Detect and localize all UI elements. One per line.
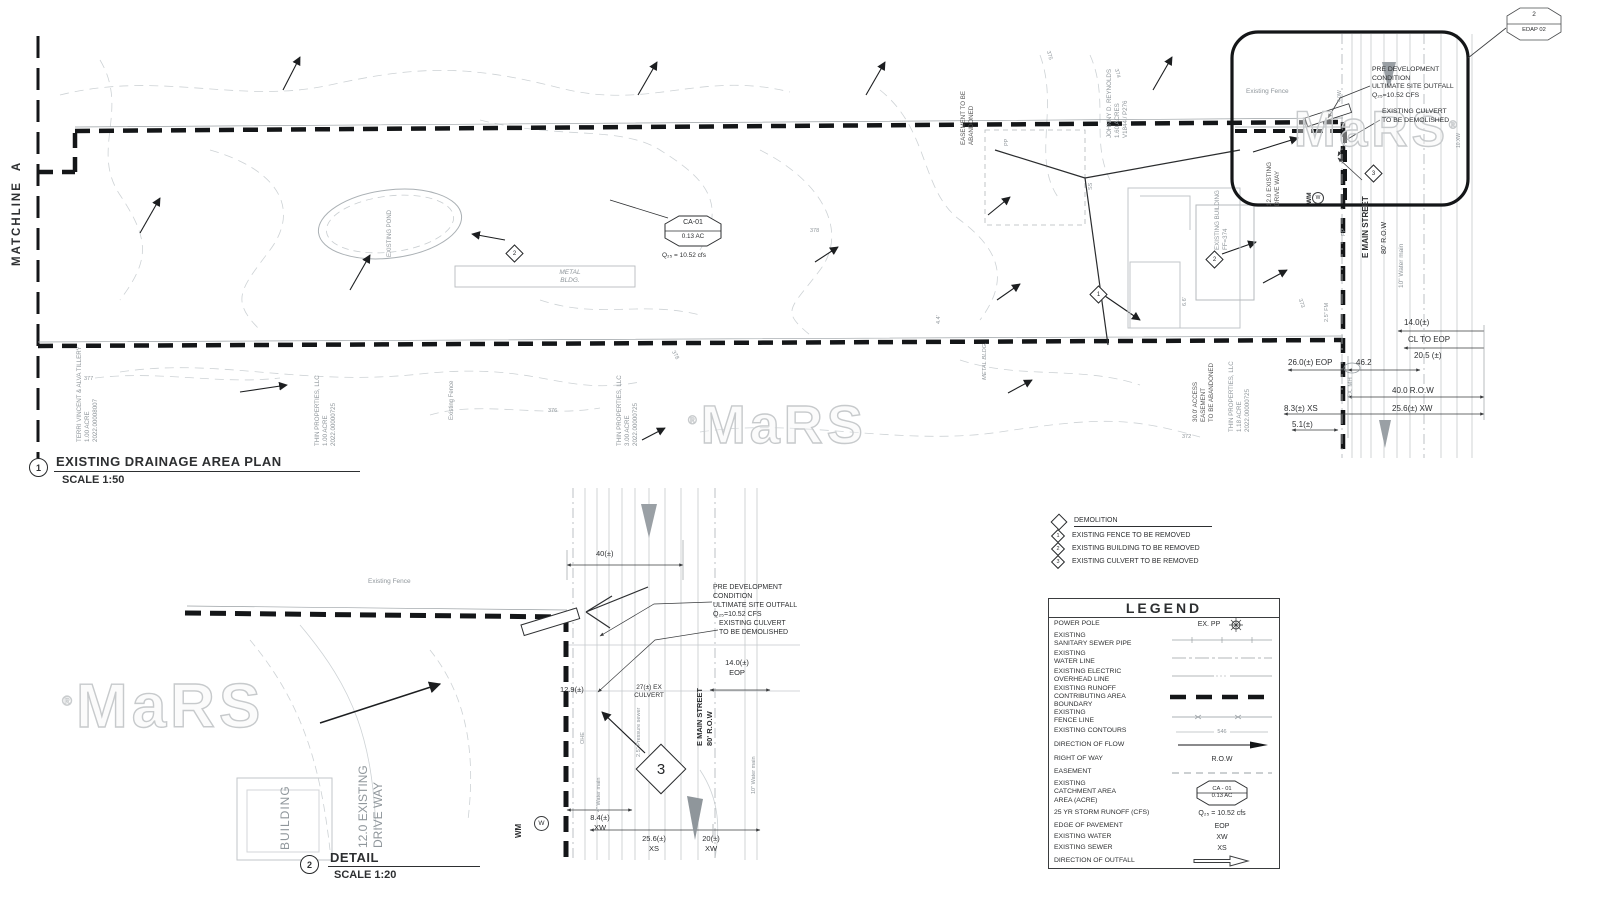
property-tillery: TERRI VINCENT & ALVA TILLERY 1.00 ACRE 2… [76, 346, 100, 442]
overhead-line-icon [1172, 672, 1272, 680]
detail-pressure-sewer: 2.5" Pressure sewer [636, 708, 643, 757]
legend-label: DIRECTION OF FLOW [1054, 741, 1170, 749]
legend: LEGEND POWER POLE EX. PP EXISTING SANITA… [1048, 598, 1280, 869]
catchment-id: CA-01 [665, 219, 721, 228]
property-thin-3: THIN PROPERTIES, LLC 3.00 ACRE 2022.0000… [616, 375, 640, 446]
existing-building-outline [1128, 188, 1254, 328]
detail-dim-40: 40(±) [596, 549, 613, 559]
legend-label: EXISTING ELECTRIC OVERHEAD LINE [1054, 668, 1170, 684]
main-title-number: 1 [29, 458, 48, 477]
catchment-octagon-icon: CA - 01 0.13 AC [1196, 780, 1248, 806]
contour-line-left [1176, 729, 1214, 735]
legend-row-power-pole: POWER POLE EX. PP [1049, 618, 1279, 631]
diamond-1-icon: 1 [1051, 528, 1065, 542]
detail-water-4: 4" Water main [596, 778, 603, 812]
detail-driveway-label: 12.0 EXISTING DRIVE WAY [356, 765, 387, 848]
street-name: E MAIN STREET [1361, 196, 1371, 258]
legend-label: EXISTING FENCE LINE [1054, 709, 1170, 725]
detail-street-label: E MAIN STREET 80' R.O.W [695, 688, 714, 746]
legend-value: EX. PP [1198, 621, 1221, 628]
detail-building-label: BUILDING [278, 785, 293, 850]
detail-dim-129: 12.9(±) [560, 685, 584, 695]
property-thin-118: THIN PROPERTIES, LLC 1.18 ACRE 2022.0000… [1228, 361, 1252, 432]
bubble-wm-circle: W [1312, 192, 1324, 204]
dim-205: 20.5 (±) [1414, 351, 1442, 361]
detail-title-number: 2 [300, 855, 319, 874]
dim-14: 14.0(±) [1404, 318, 1429, 328]
demolition-diamond-icon [1051, 513, 1068, 530]
legend-label: EXISTING CATCHMENT AREA AREA (ACRE) [1054, 780, 1170, 804]
legend-label: EDGE OF PAVEMENT [1054, 822, 1170, 830]
contour-377: 377 [84, 376, 93, 383]
legend-row-fence: EXISTING FENCE LINE [1049, 709, 1279, 725]
demolition-item-3: 3 EXISTING CULVERT TO BE REMOVED [1050, 555, 1212, 568]
main-title-underline [54, 471, 360, 472]
bubble-predev-label: PRE DEVELOPMENT CONDITION ULTIMATE SITE … [1372, 66, 1454, 101]
main-title: EXISTING DRAINAGE AREA PLAN [56, 454, 282, 471]
row-value: R.O.W [1212, 756, 1233, 763]
bubble-driveway-label: 12.0 EXISTING DRIVE WAY [1266, 162, 1282, 206]
dim-cl-eop: CL TO EOP [1408, 335, 1450, 345]
xw-value: XW [1216, 834, 1227, 841]
existing-building-label: EXISTING BUILDING FF=374 [1214, 190, 1230, 250]
power-pole-icon [1220, 618, 1246, 632]
sewer-line-icon [1172, 636, 1272, 644]
pp-label-2: PP [1341, 229, 1348, 236]
ss-label: SS [1088, 183, 1095, 190]
detail-dim-84: 8.4(±) XW [577, 813, 623, 832]
legend-label: EXISTING RUNOFF CONTRIBUTING AREA BOUNDA… [1054, 685, 1170, 709]
detail-culvert-27: 27(±) EX CULVERT [627, 684, 671, 701]
dim-40-row: 40.0 R.O.W [1392, 386, 1434, 396]
contour-372: 372 [1182, 434, 1191, 441]
bubble-existing-fence: Existing Fence [1246, 88, 1289, 96]
legend-label: EXISTING CONTOURS [1054, 727, 1170, 735]
diamond-2-icon: 2 [1051, 541, 1065, 555]
metal-building-label: METAL BLDG. [540, 269, 600, 286]
legend-row-eop: EDGE OF PAVEMENT EOP [1049, 820, 1279, 832]
water-line-icon [1172, 654, 1272, 662]
dim-51: 5.1(±) [1292, 420, 1313, 430]
catchment-runoff: Q₂₅ = 10.52 cfs [662, 252, 706, 260]
detail-ohe: OHE [580, 732, 587, 744]
bubble-culvert-label: EXISTING CULVERT TO BE DEMOLISHED [1382, 108, 1449, 125]
legend-label: EXISTING SEWER [1054, 844, 1170, 852]
easement-abandoned-label: EASEMENT TO BE ABANDONED [960, 91, 976, 145]
runoff-boundary [38, 122, 1343, 455]
access-easement-label: 30.0' ACCESS EASEMENT TO BE ABANDONED [1192, 363, 1216, 422]
catchment-octagon-value: CA - 01 0.13 AC [1196, 780, 1248, 806]
legend-row-easement: EASEMENT [1049, 766, 1279, 779]
detail-title: DETAIL [330, 850, 379, 867]
detail-water-10: 10" Water main [751, 756, 758, 794]
detail-dim-20: 20(±) XW [688, 834, 734, 853]
legend-row-flow: DIRECTION OF FLOW [1049, 738, 1279, 752]
street-row: 80' R.O.W [1381, 222, 1390, 254]
legend-row-runoff-cfs: 25 YR STORM RUNOFF (CFS) Q₂₅ = 10.52 cfs [1049, 806, 1279, 820]
demolition-item-2-label: EXISTING BUILDING TO BE REMOVED [1072, 545, 1200, 552]
fm-label: 2.5" FM [1324, 303, 1331, 322]
demolition-key: DEMOLITION 1 EXISTING FENCE TO BE REMOVE… [1050, 514, 1212, 568]
runoff-cfs-value: Q₂₅ = 10.52 cfs [1198, 810, 1245, 817]
matchline-label: MATCHLINE A [10, 161, 25, 266]
detail-dim-256: 25.6(±) XS [631, 834, 677, 853]
dim-462: 46.2 [1356, 358, 1372, 368]
dim-26-eop: 26.0(±) EOP [1288, 358, 1332, 368]
demolition-title-row: DEMOLITION [1050, 514, 1212, 529]
detail-predev-label: PRE DEVELOPMENT CONDITION ULTIMATE SITE … [713, 584, 797, 620]
existing-fence-label: Existing Fence [449, 381, 457, 420]
metal-building-2-label: METAL BLDG. [982, 342, 989, 380]
len-66-label: 6.6' [1182, 297, 1189, 306]
legend-row-xs: EXISTING SEWER XS [1049, 843, 1279, 854]
detail-culvert-label: EXISTING CULVERT TO BE DEMOLISHED [719, 620, 788, 638]
legend-row-water: EXISTING WATER LINE [1049, 649, 1279, 667]
demolition-item-1-label: EXISTING FENCE TO BE REMOVED [1072, 532, 1190, 539]
main-scale: SCALE 1:50 [62, 473, 124, 487]
legend-label: 25 YR STORM RUNOFF (CFS) [1054, 809, 1170, 817]
demolition-item-1: 1 EXISTING FENCE TO BE REMOVED [1050, 529, 1212, 542]
detail-title-underline [328, 866, 480, 867]
legend-label: EXISTING WATER [1054, 833, 1170, 841]
pp-label-1: PP [1004, 139, 1011, 146]
legend-row-sewer: EXISTING SANITARY SEWER PIPE [1049, 631, 1279, 649]
w40-label: 4.0W [1337, 90, 1343, 102]
demolition-title: DEMOLITION [1074, 517, 1212, 527]
legend-row-outfall: DIRECTION OF OUTFALL [1049, 854, 1279, 868]
detail-curves [250, 625, 718, 858]
fence-line-icon [1172, 713, 1272, 721]
xs-value: XS [1217, 845, 1226, 852]
detail-existing-fence: Existing Fence [368, 578, 411, 586]
legend-label: RIGHT OF WAY [1054, 755, 1170, 763]
xw10-label: 10.XW [1456, 133, 1462, 148]
detail-dim-14: 14.0(±) EOP [713, 658, 761, 677]
len-44-label: 4.4' [936, 315, 943, 324]
contour-378b: 378 [810, 228, 819, 235]
runoff-boundary-icon [1170, 692, 1274, 702]
ex-mh-label: EX. MH [1348, 377, 1356, 398]
property-thin-1: THIN PROPERTIES, LLC 1.00 ACRE 2022.0000… [314, 375, 338, 446]
demolition-item-3-label: EXISTING CULVERT TO BE REMOVED [1072, 558, 1199, 565]
outfall-arrow-icon [1192, 855, 1252, 867]
contour-elevation-value: 546 [1214, 729, 1229, 735]
legend-row-xw: EXISTING WATER XW [1049, 832, 1279, 843]
pond-label: EXISTING POND [387, 210, 395, 257]
catchment-area: 0.13 AC [665, 233, 721, 241]
legend-label: DIRECTION OF OUTFALL [1054, 857, 1170, 865]
legend-title: LEGEND [1049, 599, 1279, 618]
legend-row-runoff-boundary: EXISTING RUNOFF CONTRIBUTING AREA BOUNDA… [1049, 685, 1279, 709]
detail-scale: SCALE 1:20 [334, 868, 396, 882]
legend-label: EASEMENT [1054, 768, 1170, 776]
contour-376: 376 [548, 408, 557, 415]
detail-wm-circle: W [534, 816, 549, 831]
flow-arrow-icon [1172, 740, 1272, 750]
contour-line-right [1230, 729, 1268, 735]
legend-label: EXISTING WATER LINE [1054, 650, 1170, 666]
dim-83-xs: 8.3(±) XS [1284, 404, 1318, 414]
legend-row-row: RIGHT OF WAY R.O.W [1049, 752, 1279, 766]
diamond-3-icon: 3 [1051, 554, 1065, 568]
legend-row-electric: EXISTING ELECTRIC OVERHEAD LINE [1049, 667, 1279, 685]
plan-linework [0, 0, 1600, 900]
detail-wm-label: WM [514, 824, 524, 838]
property-reynolds: JOHNNY D. REYNOLDS 1.60 ACRES V1844 / P2… [1106, 69, 1130, 138]
street-watermain: 10" Water main [1398, 244, 1406, 288]
ref-bubble-sheet: EDAP 02 [1512, 27, 1556, 34]
legend-row-catchment: EXISTING CATCHMENT AREA AREA (ACRE) CA -… [1049, 779, 1279, 806]
ref-bubble-num: 2 [1521, 11, 1547, 19]
legend-row-contours: EXISTING CONTOURS 546 [1049, 725, 1279, 738]
dim-256-xw: 25.6(±) XW [1392, 404, 1432, 414]
legend-label: POWER POLE [1054, 620, 1170, 628]
drawing-sheet: ®MaRS MaRS® ®MaRS MATCHLINE A EXISTING P… [0, 0, 1600, 900]
legend-label: EXISTING SANITARY SEWER PIPE [1054, 632, 1170, 648]
eop-value: EOP [1215, 823, 1230, 830]
demolition-item-2: 2 EXISTING BUILDING TO BE REMOVED [1050, 542, 1212, 555]
easement-line-icon [1172, 770, 1272, 776]
